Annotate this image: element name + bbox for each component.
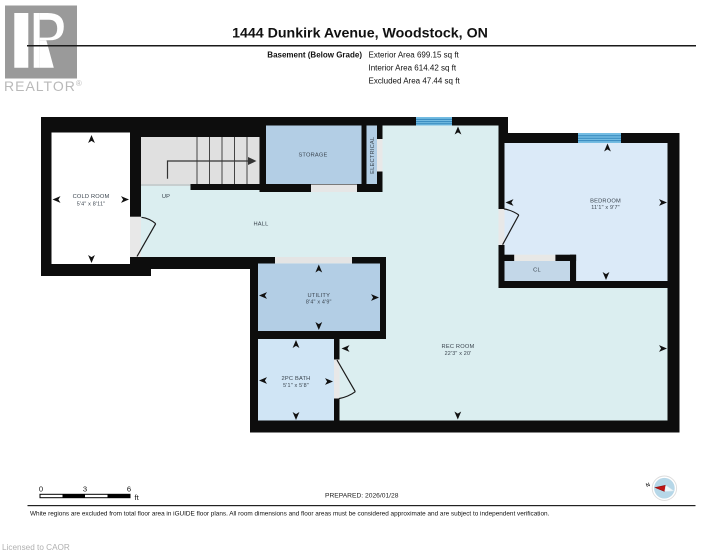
svg-text:3: 3 bbox=[83, 485, 87, 494]
svg-text:2PC BATH: 2PC BATH bbox=[282, 376, 311, 382]
svg-text:6: 6 bbox=[127, 485, 131, 494]
svg-text:HALL: HALL bbox=[253, 222, 268, 228]
svg-text:Excluded Area 47.44 sq ft: Excluded Area 47.44 sq ft bbox=[369, 76, 461, 85]
svg-text:REC ROOM: REC ROOM bbox=[442, 344, 475, 350]
svg-text:22'3" x 20': 22'3" x 20' bbox=[445, 351, 472, 357]
svg-text:11'1" x 9'7": 11'1" x 9'7" bbox=[591, 205, 620, 211]
svg-text:UTILITY: UTILITY bbox=[308, 293, 331, 299]
svg-text:BEDROOM: BEDROOM bbox=[590, 198, 621, 204]
svg-text:5'4" x 8'11": 5'4" x 8'11" bbox=[77, 201, 106, 207]
svg-text:STORAGE: STORAGE bbox=[298, 153, 327, 159]
svg-text:REALTOR®: REALTOR® bbox=[4, 78, 83, 94]
svg-text:ELECTRICAL: ELECTRICAL bbox=[370, 137, 376, 174]
svg-text:UP: UP bbox=[162, 194, 170, 200]
svg-text:Exterior Area 699.15 sq ft: Exterior Area 699.15 sq ft bbox=[369, 50, 460, 59]
svg-text:5'1" x 5'8": 5'1" x 5'8" bbox=[283, 383, 309, 389]
svg-text:Licensed to CAOR: Licensed to CAOR bbox=[2, 543, 70, 552]
svg-text:PREPARED: 2026/01/28: PREPARED: 2026/01/28 bbox=[325, 492, 399, 499]
svg-text:0: 0 bbox=[39, 485, 43, 494]
svg-text:CL: CL bbox=[533, 268, 541, 274]
svg-text:8'4" x 4'9": 8'4" x 4'9" bbox=[306, 300, 332, 306]
svg-text:1444 Dunkirk Avenue, Woodstock: 1444 Dunkirk Avenue, Woodstock, ON bbox=[232, 26, 488, 42]
svg-text:Interior Area 614.42 sq ft: Interior Area 614.42 sq ft bbox=[369, 63, 457, 72]
svg-text:White regions are excluded fro: White regions are excluded from total fl… bbox=[30, 511, 550, 518]
svg-text:COLD ROOM: COLD ROOM bbox=[73, 194, 110, 200]
svg-text:Basement (Below Grade): Basement (Below Grade) bbox=[267, 50, 362, 59]
